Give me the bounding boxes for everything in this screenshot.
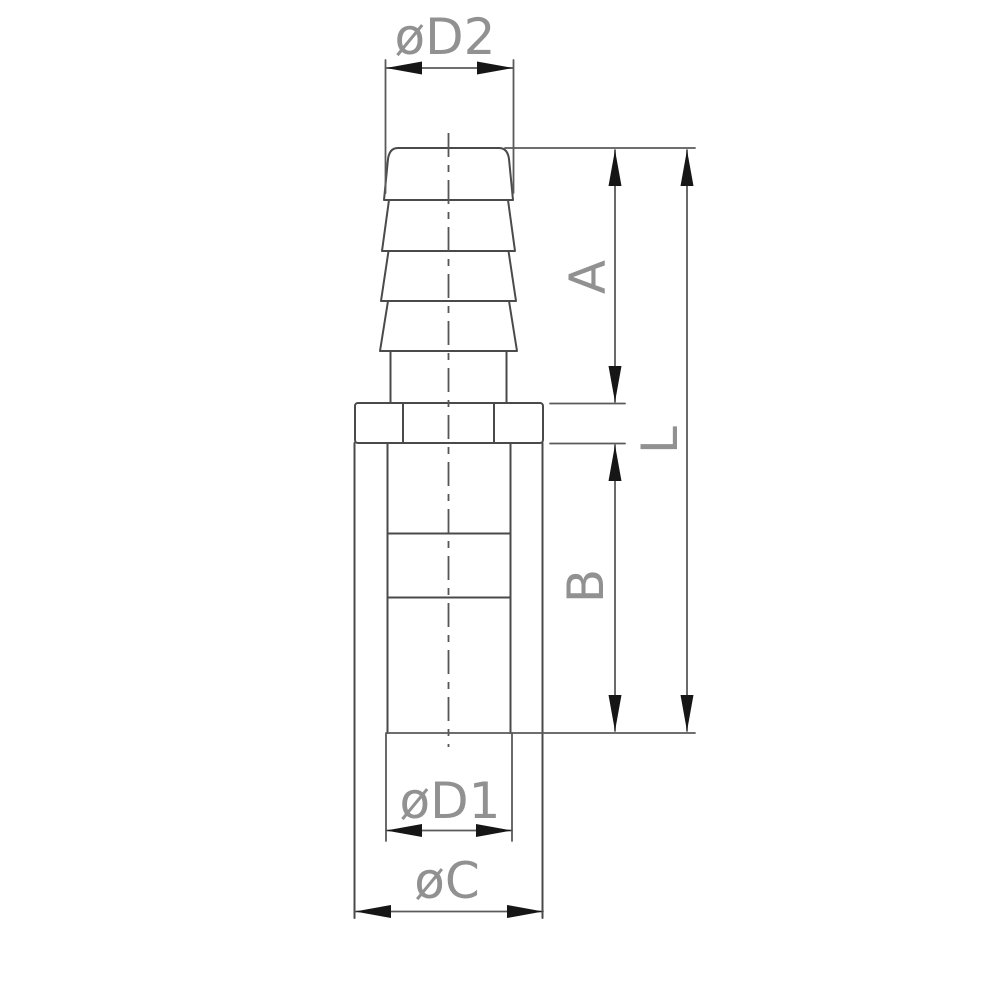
dimension-d1: øD1 [386,733,512,841]
drawing-page: øD2 A L B [0,0,1000,1000]
b-arrow-top [609,445,622,481]
dimension-b: B [388,444,696,734]
c-label: øC [414,852,480,910]
b-label: B [557,569,615,603]
c-arrow-right [507,905,543,918]
dimension-l: L [631,150,694,731]
l-arrow-top [681,150,694,186]
l-label: L [631,426,689,454]
d1-label: øD1 [400,772,501,830]
dimension-c: øC [355,852,543,918]
technical-drawing-canvas: øD2 A L B [0,0,1000,1000]
l-arrow-bottom [681,695,694,731]
a-arrow-bottom [609,366,622,402]
d2-label: øD2 [395,8,496,66]
dimension-a: A [505,148,695,404]
a-label: A [559,260,617,294]
a-arrow-top [609,150,622,186]
b-arrow-bottom [609,695,622,731]
dimension-d2: øD2 [386,8,514,193]
c-arrow-left [355,905,391,918]
